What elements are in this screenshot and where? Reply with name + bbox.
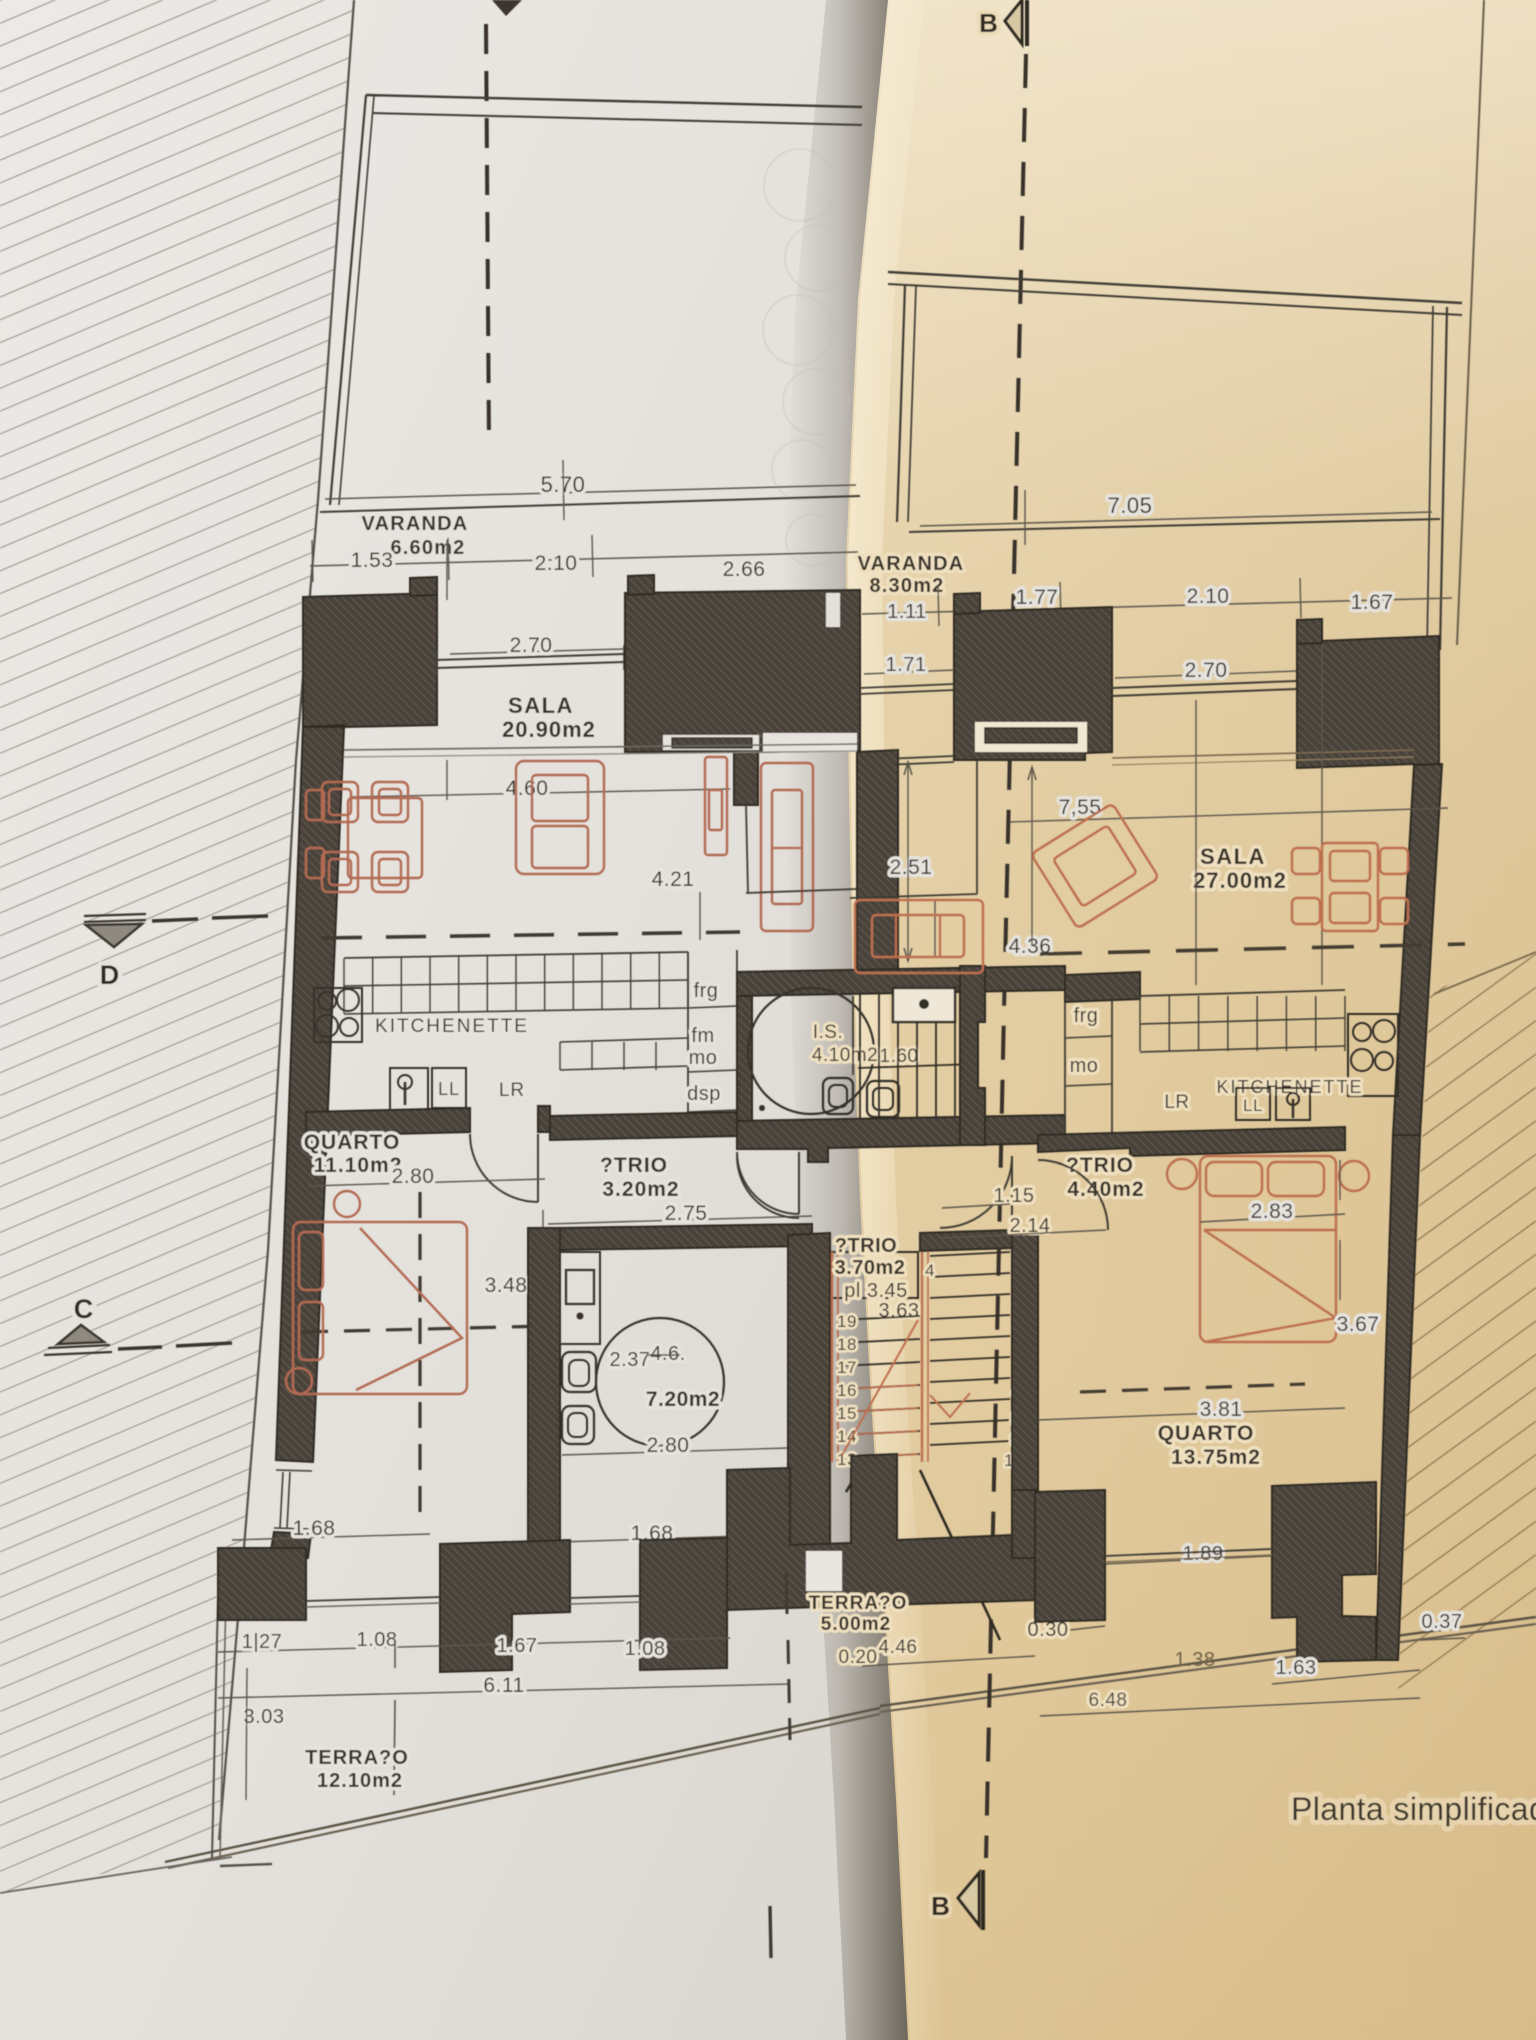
svg-text:B: B [931,1891,951,1921]
svg-text:VARANDA: VARANDA [362,513,469,535]
svg-text:1.08: 1.08 [625,1638,666,1660]
svg-text:2.83: 2.83 [1251,1200,1294,1223]
svg-text:TERRA?O: TERRA?O [305,1747,409,1769]
svg-text:19: 19 [837,1312,857,1331]
svg-text:5.00m2: 5.00m2 [821,1614,891,1635]
svg-text:1.60: 1.60 [880,1046,919,1067]
svg-text:4.46: 4.46 [879,1637,918,1658]
svg-text:18: 18 [837,1335,857,1354]
svg-text:dsp: dsp [687,1083,721,1105]
svg-text:1.63: 1.63 [1276,1657,1317,1679]
svg-text:4.21: 4.21 [652,868,695,891]
svg-text:fm: fm [691,1025,714,1047]
svg-text:2.70: 2.70 [1185,659,1228,682]
svg-text:11.10m2: 11.10m2 [314,1154,403,1177]
svg-text:27.00m2: 27.00m2 [1193,868,1287,893]
svg-text:16: 16 [837,1381,857,1400]
svg-text:7.05: 7.05 [1108,493,1153,518]
svg-text:?TRIO: ?TRIO [600,1154,668,1177]
svg-text:2.80: 2.80 [392,1165,435,1188]
svg-text:C: C [74,1294,95,1324]
svg-text:pl 3.45: pl 3.45 [844,1280,908,1302]
svg-text:2.51: 2.51 [890,856,933,879]
svg-text:2.70: 2.70 [510,634,553,657]
svg-text:Planta simplificada d: Planta simplificada d [1291,1791,1536,1827]
svg-text:4.6.: 4.6. [650,1343,685,1365]
svg-text:VARANDA: VARANDA [858,553,965,575]
svg-text:6.11: 6.11 [483,1674,524,1697]
svg-text:TERRA?O: TERRA?O [809,1593,908,1614]
svg-text:mo: mo [1070,1055,1099,1077]
svg-text:0.37: 0.37 [1422,1611,1463,1633]
svg-text:1|27: 1|27 [242,1631,283,1653]
svg-text:12.10m2: 12.10m2 [317,1770,403,1792]
svg-text:2.66: 2.66 [723,558,766,581]
svg-text:4.60: 4.60 [506,777,549,800]
svg-text:7,55: 7,55 [1059,796,1102,819]
svg-text:?TRIO: ?TRIO [835,1235,898,1257]
svg-text:8.30m2: 8.30m2 [869,575,944,597]
svg-text:6.60m2: 6.60m2 [390,537,465,559]
svg-text:frg: frg [1074,1005,1099,1027]
svg-text:frg: frg [694,980,719,1002]
svg-text:QUARTO: QUARTO [1158,1422,1255,1445]
svg-text:3.03: 3.03 [244,1706,285,1728]
svg-text:LL: LL [1243,1096,1263,1115]
svg-text:1.08: 1.08 [357,1629,398,1651]
svg-text:1.11: 1.11 [887,601,926,623]
svg-text:20.90m2: 20.90m2 [502,717,596,742]
svg-text:1.53: 1.53 [351,549,394,572]
svg-text:1.77: 1.77 [1016,586,1059,609]
svg-text:3.70m2: 3.70m2 [835,1257,906,1279]
svg-text:?TRIO: ?TRIO [1066,1154,1134,1177]
svg-text:LR: LR [499,1080,525,1101]
svg-text:2.10: 2.10 [535,552,578,575]
svg-text:LR: LR [1164,1092,1189,1113]
svg-text:1.15: 1.15 [994,1185,1035,1207]
svg-text:4.10m2: 4.10m2 [812,1045,878,1066]
svg-text:D: D [100,960,121,990]
svg-text:SALA: SALA [1200,844,1266,869]
svg-text:1.67: 1.67 [1351,591,1394,614]
svg-text:3.63: 3.63 [879,1300,920,1322]
svg-text:4.40m2: 4.40m2 [1067,1178,1144,1201]
svg-text:3.81: 3.81 [1200,1398,1243,1421]
svg-text:3.48: 3.48 [485,1274,528,1297]
svg-text:2.37: 2.37 [610,1349,651,1371]
svg-text:3.67: 3.67 [1337,1313,1380,1336]
svg-text:LL: LL [438,1079,460,1099]
svg-text:1.67: 1.67 [497,1635,538,1657]
svg-text:1.68: 1.68 [293,1517,336,1540]
svg-text:2.80: 2.80 [647,1434,690,1457]
svg-text:7.20m2: 7.20m2 [646,1388,720,1411]
svg-text:3.20m2: 3.20m2 [602,1178,679,1201]
svg-text:13.75m2: 13.75m2 [1171,1446,1261,1469]
svg-text:B: B [979,8,999,38]
svg-text:1.71: 1.71 [886,654,927,676]
svg-text:1.38: 1.38 [1175,1649,1216,1671]
svg-text:2.75: 2.75 [665,1202,708,1225]
svg-text:KITCHENETTE: KITCHENETTE [375,1016,529,1037]
svg-text:6.48: 6.48 [1089,1690,1128,1711]
svg-text:2.10: 2.10 [1187,585,1230,608]
svg-text:15: 15 [837,1404,857,1423]
svg-text:14: 14 [837,1427,857,1446]
svg-text:17: 17 [837,1358,857,1377]
svg-text:QUARTO: QUARTO [304,1131,401,1154]
svg-text:1.89: 1.89 [1183,1543,1224,1565]
svg-text:I.S.: I.S. [813,1022,844,1043]
svg-text:SALA: SALA [508,693,574,718]
svg-text:4: 4 [925,1261,935,1280]
svg-text:mo: mo [689,1047,718,1069]
